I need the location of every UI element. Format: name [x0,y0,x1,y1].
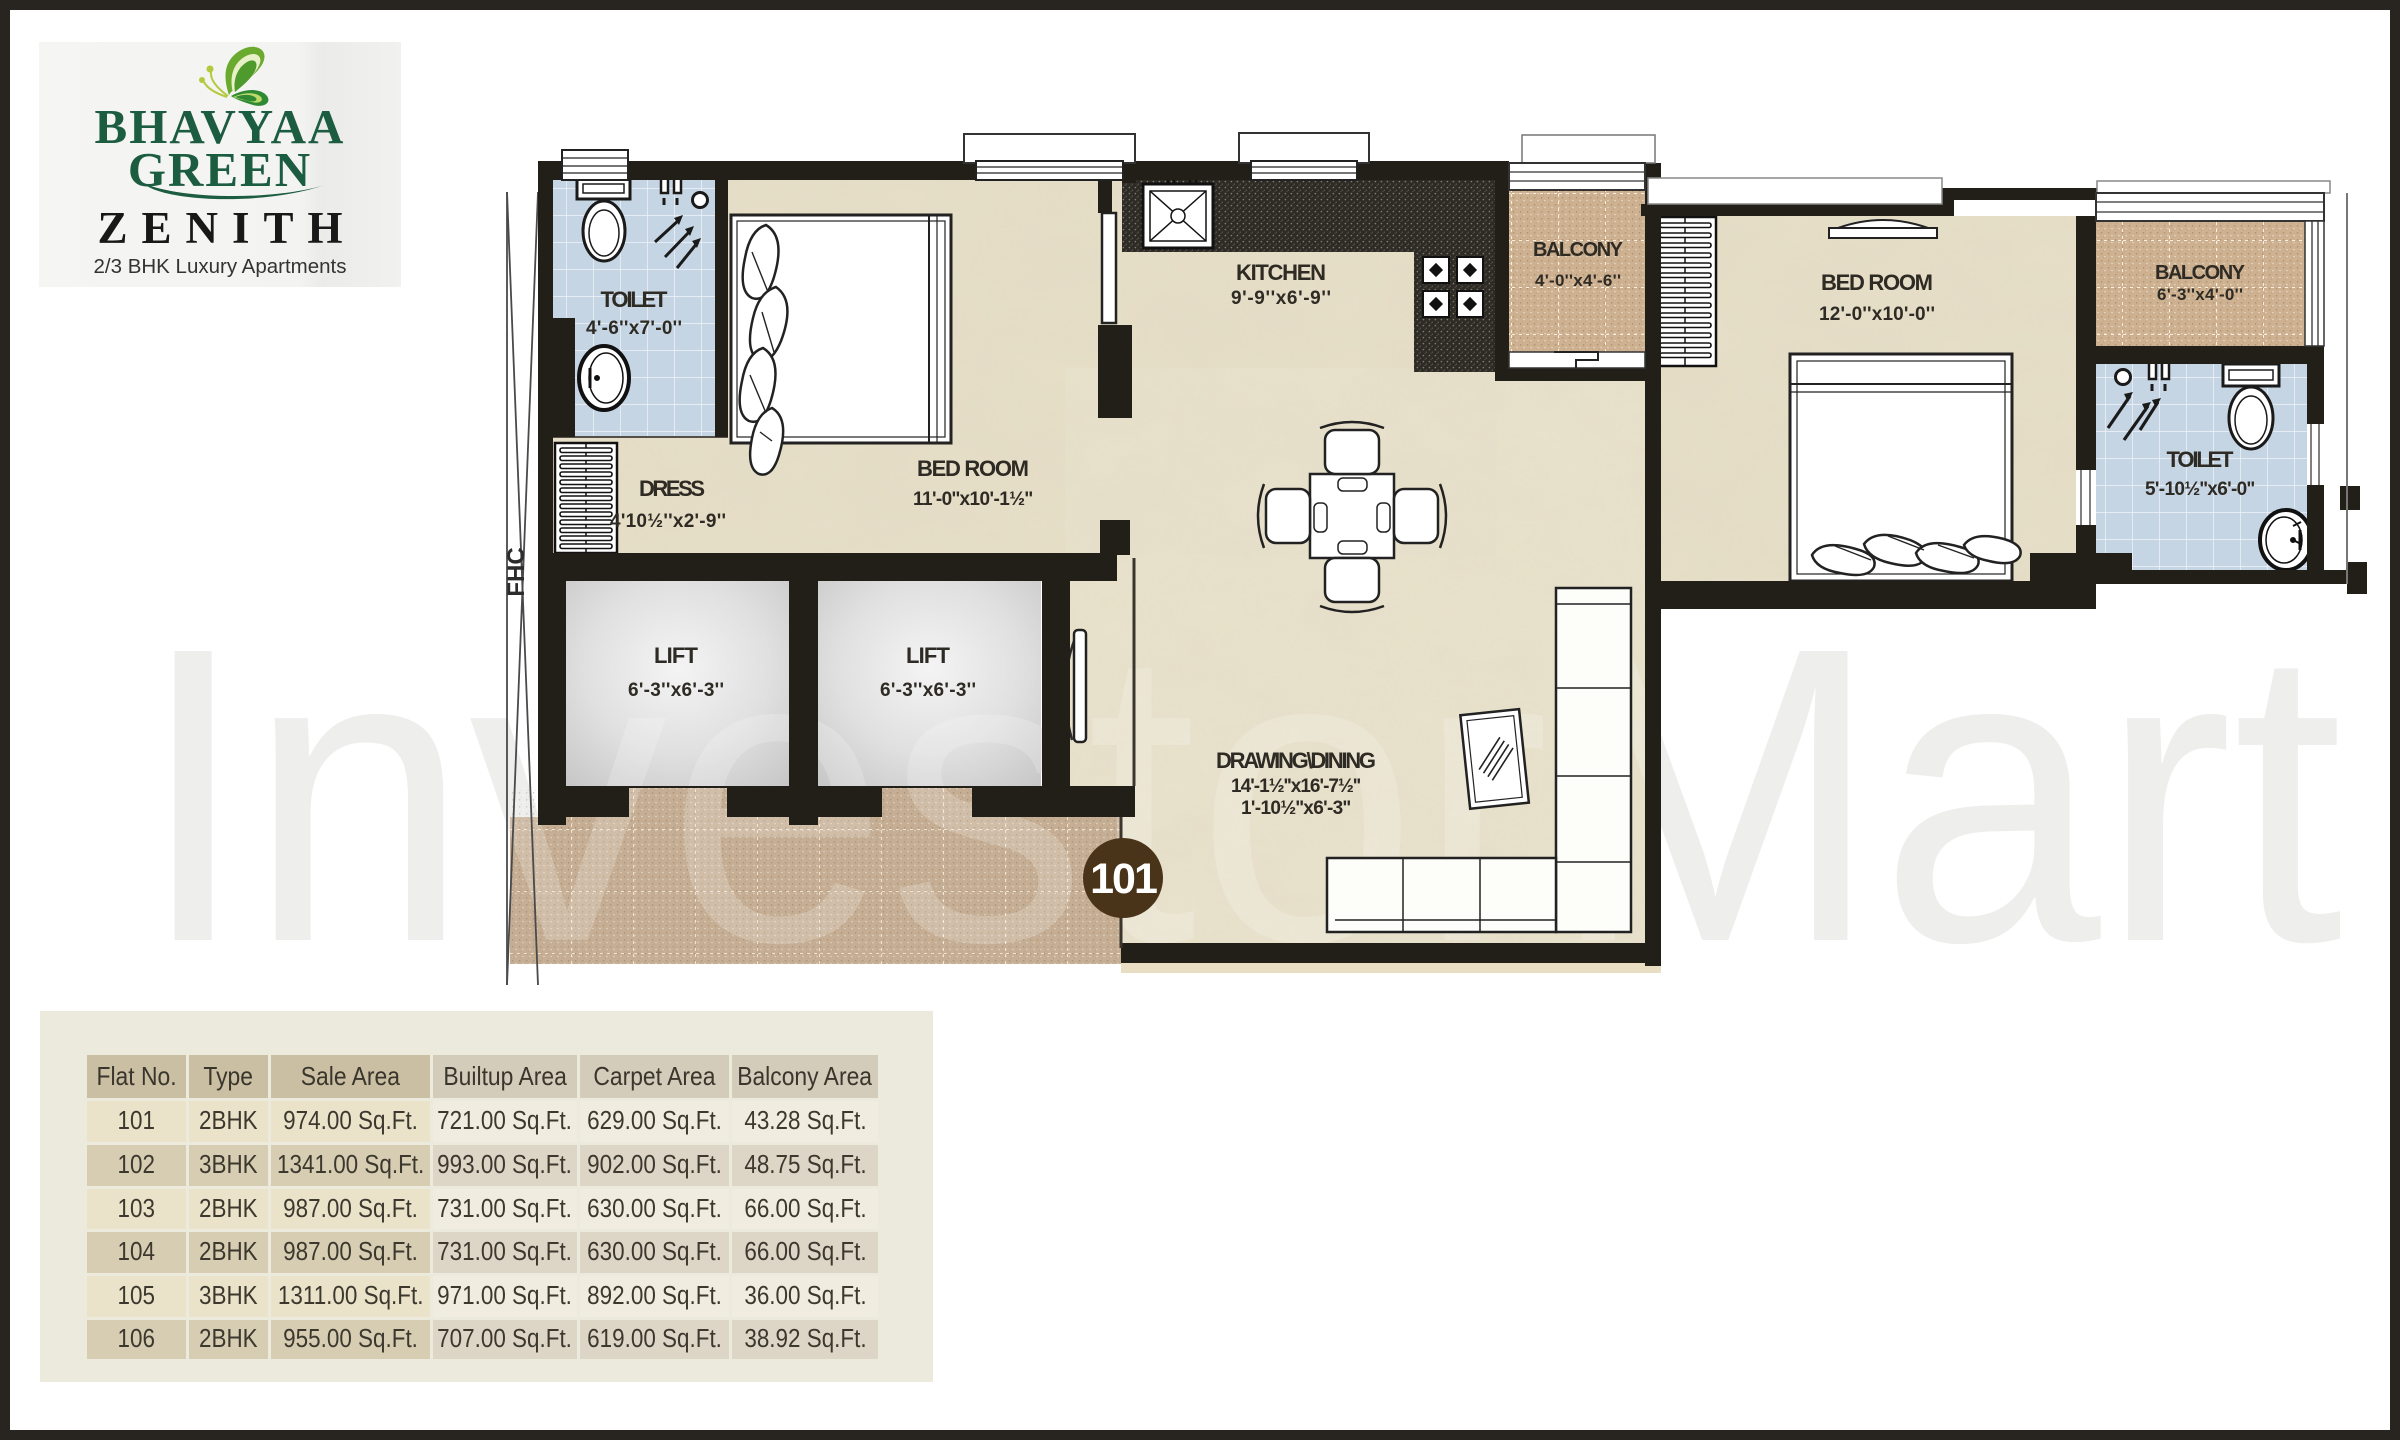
svg-text:9'-9''x6'-9'': 9'-9''x6'-9'' [1231,288,1331,309]
svg-text:6'-3''x6'-3'': 6'-3''x6'-3'' [880,680,976,701]
svg-text:BALCONY: BALCONY [1533,239,1624,261]
svg-text:DRESS: DRESS [639,476,705,501]
svg-text:4'10½''x2'-9'': 4'10½''x2'-9'' [610,511,726,532]
svg-text:TOILET: TOILET [2167,447,2235,472]
svg-text:4'-6''x7'-0'': 4'-6''x7'-0'' [586,318,682,339]
svg-text:BALCONY: BALCONY [2155,262,2246,284]
svg-text:1'-10½''x6'-3'': 1'-10½''x6'-3'' [1241,798,1351,819]
svg-text:LIFT: LIFT [906,643,951,668]
svg-text:14'-1½''x16'-7½'': 14'-1½''x16'-7½'' [1231,776,1361,797]
svg-text:KITCHEN: KITCHEN [1236,260,1326,285]
svg-text:DRAWING\DINING: DRAWING\DINING [1216,748,1376,773]
svg-text:6'-3''x6'-3'': 6'-3''x6'-3'' [628,680,724,701]
svg-text:BED ROOM: BED ROOM [917,456,1029,481]
svg-text:101: 101 [1090,855,1157,903]
svg-text:BED ROOM: BED ROOM [1821,270,1933,295]
svg-text:FHC: FHC [503,547,530,596]
svg-text:11'-0''x10'-1½'': 11'-0''x10'-1½'' [913,489,1033,510]
svg-text:4'-0''x4'-6'': 4'-0''x4'-6'' [1535,271,1621,290]
svg-text:TOILET: TOILET [601,287,669,312]
svg-text:12'-0''x10'-0'': 12'-0''x10'-0'' [1819,304,1935,325]
svg-text:LIFT: LIFT [654,643,699,668]
svg-text:6'-3''x4'-0'': 6'-3''x4'-0'' [2157,285,2243,304]
svg-text:5'-10½''x6'-0'': 5'-10½''x6'-0'' [2145,479,2255,500]
